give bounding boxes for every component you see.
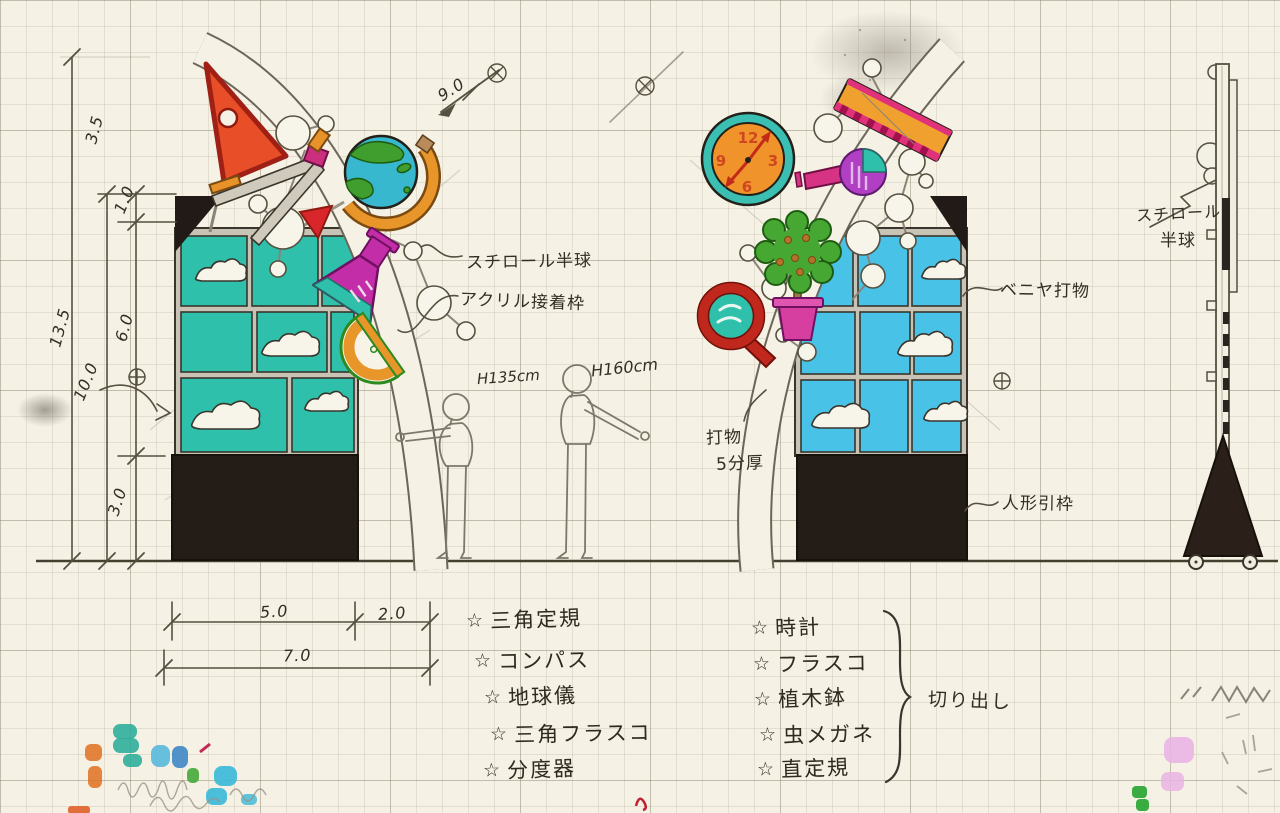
brace-label-kiridashi: 切り出し bbox=[928, 685, 1013, 715]
parts-list-right-item-5: ☆ 直定規 bbox=[757, 751, 851, 784]
star-bullet-icon: ☆ bbox=[484, 688, 502, 708]
annotation-cutout: 打物 bbox=[706, 422, 743, 448]
parts-list-left-item-4: ☆ 三角フラスコ bbox=[490, 717, 652, 750]
parts-list-right-item-1: ☆ 時計 bbox=[750, 611, 821, 643]
star-bullet-icon: ☆ bbox=[753, 654, 770, 673]
dim-label-panel-width: 5.0 bbox=[260, 601, 289, 621]
star-bullet-icon: ☆ bbox=[490, 725, 507, 744]
parts-list-left-item-1: ☆ 三角定規 bbox=[466, 602, 583, 636]
parts-list-left-item-3: ☆ 地球儀 bbox=[484, 679, 578, 712]
design-sketch: 12 3 6 9 bbox=[0, 0, 1280, 813]
color-swatches-left bbox=[68, 724, 266, 813]
sketch-scene: 12 3 6 9 bbox=[0, 0, 1280, 813]
dim-label-side-width: 2.0 bbox=[377, 603, 407, 624]
right-base bbox=[797, 455, 967, 560]
star-bullet-icon: ☆ bbox=[483, 761, 501, 781]
human-figure-large bbox=[558, 365, 649, 558]
parts-list-left-item-5: ☆ 分度器 bbox=[483, 752, 577, 785]
left-structure bbox=[172, 196, 358, 560]
left-base bbox=[172, 455, 358, 560]
parts-list-right-item-2: ☆ フラスコ bbox=[753, 647, 869, 679]
annotation-side-hemisphere: 半球 bbox=[1160, 226, 1196, 251]
clock-number-9: 9 bbox=[716, 152, 726, 170]
star-bullet-icon: ☆ bbox=[759, 725, 776, 744]
star-bullet-icon: ☆ bbox=[466, 611, 484, 631]
clock: 12 3 6 9 bbox=[702, 113, 794, 205]
star-bullet-icon: ☆ bbox=[757, 760, 775, 780]
clock-number-6: 6 bbox=[742, 178, 752, 196]
annotation-styrofoam-hemisphere: スチロール半球 bbox=[466, 246, 592, 273]
annotation-figure-pull-frame: 人形引枠 bbox=[1002, 488, 1074, 514]
parts-list-right-item-4: ☆ 虫メガネ bbox=[759, 718, 876, 750]
globe bbox=[345, 135, 434, 224]
red-mark bbox=[636, 799, 646, 810]
dim-label-total-width: 7.0 bbox=[283, 646, 312, 666]
side-view-panel bbox=[1184, 64, 1262, 569]
annotation-cutout-thickness: 5分厚 bbox=[716, 448, 765, 475]
parts-list-right-item-3: ☆ 植木鉢 bbox=[754, 681, 848, 714]
color-swatches-right bbox=[1132, 687, 1272, 811]
parts-list-left-item-2: ☆ コンパス bbox=[474, 644, 591, 676]
star-bullet-icon: ☆ bbox=[754, 690, 772, 710]
annotation-plywood-cutout: ベニヤ打物 bbox=[1000, 275, 1090, 302]
star-bullet-icon: ☆ bbox=[751, 618, 769, 638]
magnifying-glass bbox=[698, 283, 776, 368]
star-bullet-icon: ☆ bbox=[474, 651, 491, 670]
clock-number-12: 12 bbox=[738, 129, 759, 147]
clock-number-3: 3 bbox=[768, 152, 778, 170]
annotation-acrylic-bond-frame: アクリル接着枠 bbox=[460, 285, 586, 314]
annotation-side-styrofoam: スチロール bbox=[1135, 198, 1221, 226]
